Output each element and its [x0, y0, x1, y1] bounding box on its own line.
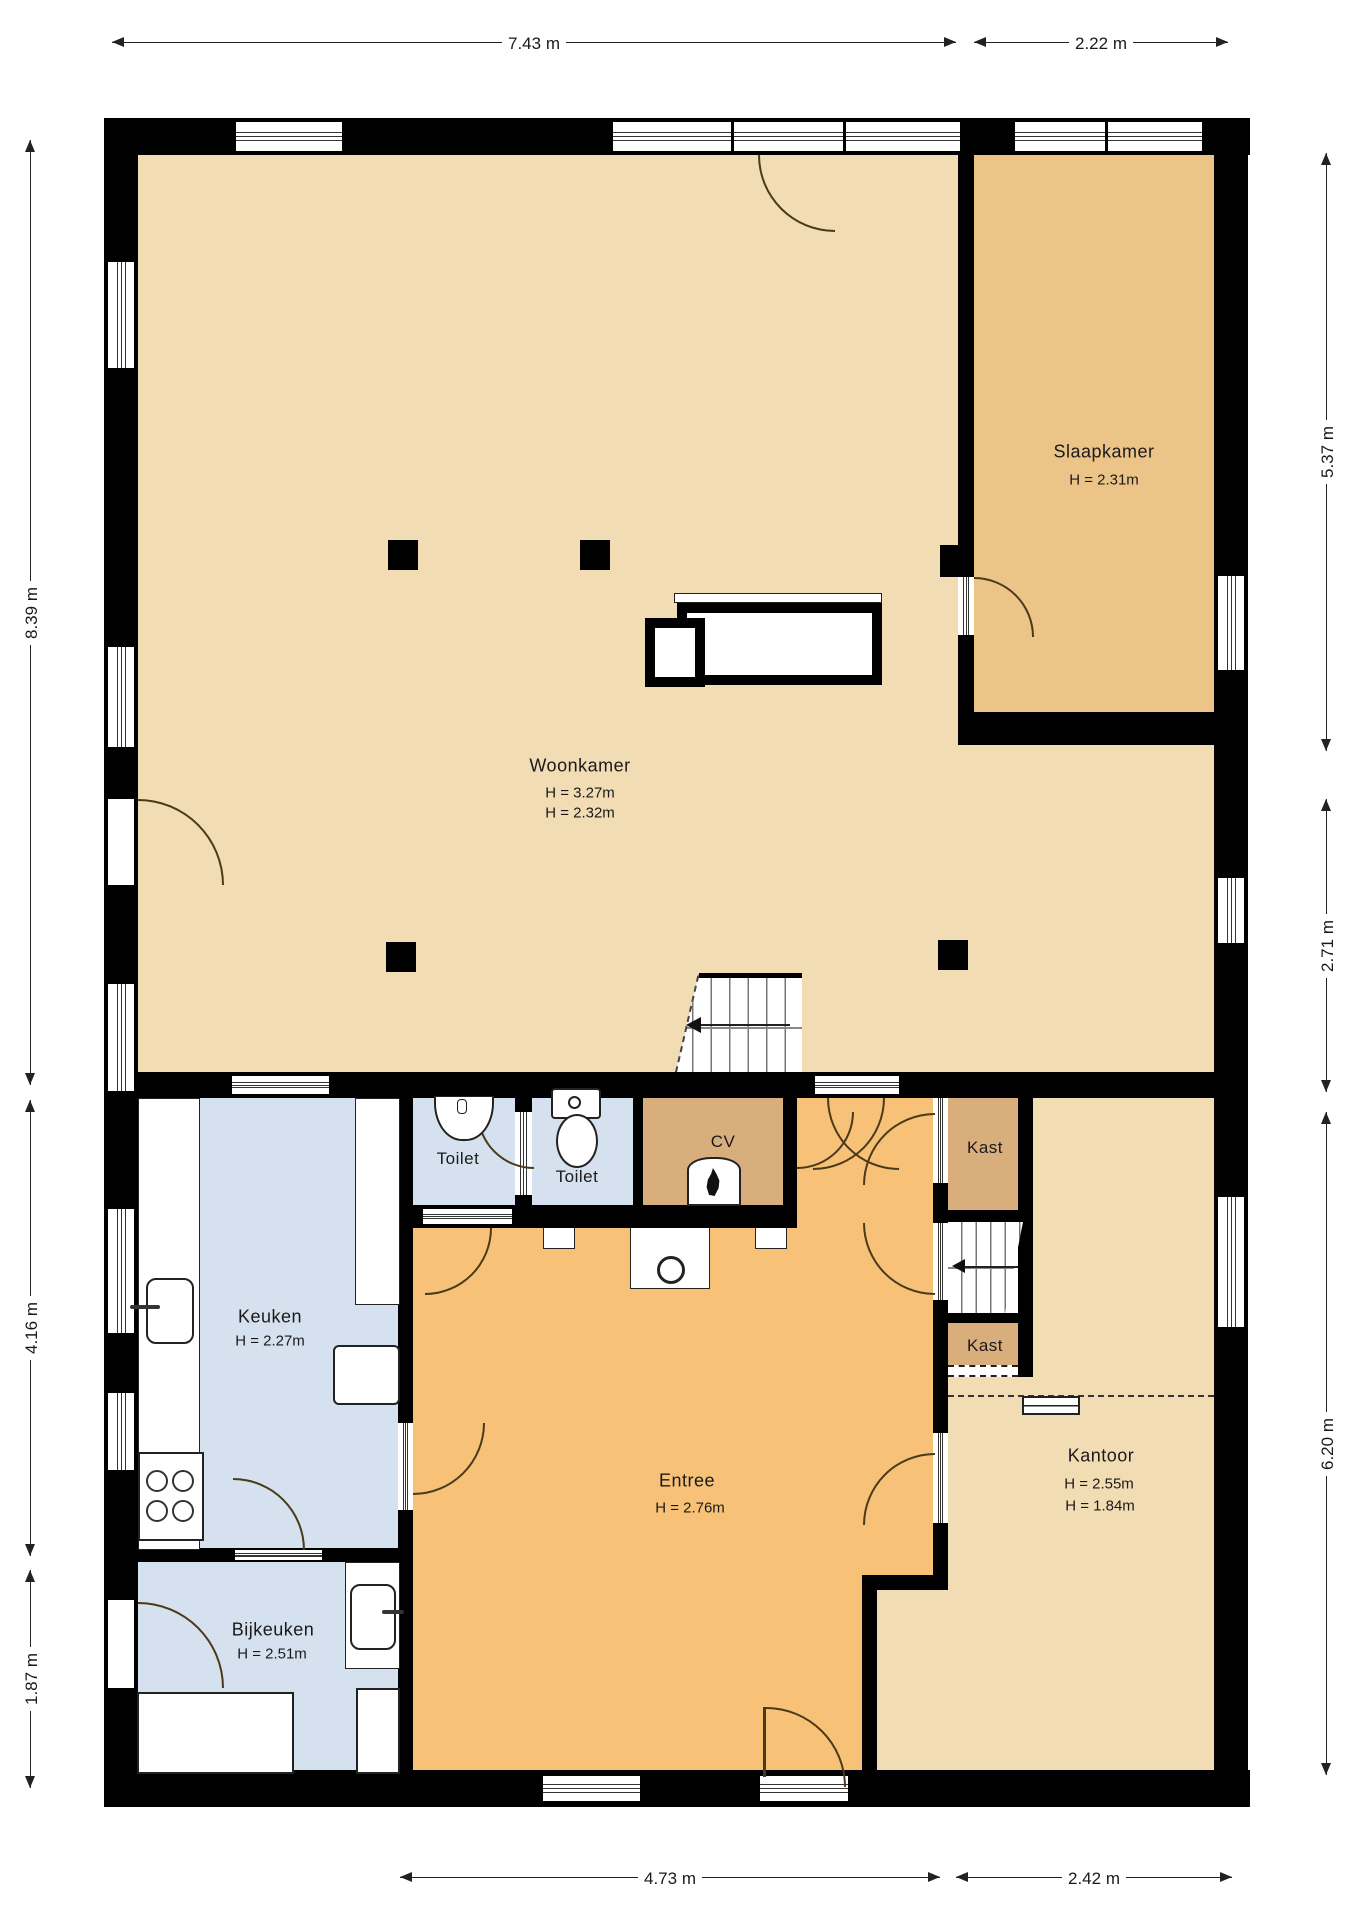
- floor-plan: Woonkamer H = 3.27m H = 2.32m Slaapkamer…: [0, 0, 1358, 1920]
- label-entree: Entree: [659, 1471, 715, 1492]
- dimension-left-1: 8.39 m: [30, 140, 31, 1085]
- door-bijkeuken: [233, 1550, 324, 1560]
- dimension-left-3: 1.87 m: [30, 1570, 31, 1788]
- column-4: [938, 940, 968, 970]
- wall-slaapkamer-stub: [940, 545, 958, 577]
- toilet2-flush-icon: [568, 1096, 581, 1109]
- window-top-2-mullion-1: [731, 122, 734, 151]
- label-slaapkamer-h: H = 2.31m: [1069, 472, 1139, 489]
- window-right-slaapkamer: [1218, 574, 1244, 672]
- kantoor-ceiling-dashed-line: [948, 1395, 1214, 1397]
- bijkeuken-sink: [350, 1584, 396, 1650]
- dimension-bottom-1: 4.73 m: [400, 1877, 940, 1878]
- column-3: [386, 942, 416, 972]
- window-keuken-2: [108, 1391, 134, 1472]
- label-keuken-h: H = 2.27m: [235, 1333, 305, 1350]
- label-woonkamer-h2: H = 2.32m: [545, 805, 615, 822]
- dimension-right-2: 2.71 m: [1326, 799, 1327, 1092]
- wall-slaapkamer-west-lower: [958, 635, 974, 712]
- column-1: [388, 540, 418, 570]
- toilet1-tap-icon: [457, 1099, 467, 1114]
- label-toilet-1: Toilet: [437, 1149, 480, 1169]
- keuken-counter-east: [355, 1098, 400, 1305]
- wall-keuken-east-lower: [398, 1510, 413, 1770]
- window-slaapkamer-top-mullion: [1105, 122, 1108, 151]
- window-left-1: [108, 260, 134, 370]
- dimension-right-2-label: 2.71 m: [1318, 914, 1338, 978]
- wall-left: [104, 118, 138, 1807]
- label-kantoor-h2: H = 1.84m: [1065, 1498, 1135, 1515]
- toilet2-bowl: [556, 1114, 598, 1168]
- fireplace-shelf: [674, 593, 882, 603]
- dimension-top-2: 2.22 m: [974, 42, 1228, 43]
- label-bijkeuken-h: H = 2.51m: [237, 1646, 307, 1663]
- dimension-left-1-label: 8.39 m: [22, 581, 42, 645]
- window-right-kantoor: [1218, 1195, 1244, 1329]
- label-entree-h: H = 2.76m: [655, 1500, 725, 1517]
- bijkeuken-washer-2: [356, 1688, 400, 1774]
- wall-slaapkamer-south: [958, 712, 1214, 745]
- dimension-left-2: 4.16 m: [30, 1100, 31, 1556]
- staircase-main-arrow-icon: [686, 1017, 701, 1033]
- entree-chimney-flue: [657, 1256, 685, 1284]
- wall-kast1-south: [948, 1210, 1023, 1222]
- window-left-2: [108, 645, 134, 749]
- dimension-right-1-label: 5.37 m: [1318, 420, 1338, 484]
- room-kantoor-main: [948, 1377, 1214, 1770]
- dimension-right-1: 5.37 m: [1326, 153, 1327, 751]
- window-top-1: [234, 122, 344, 151]
- room-kantoor-north: [1033, 1098, 1214, 1397]
- hatch-keuken: [230, 1076, 331, 1094]
- label-kast-2: Kast: [967, 1336, 1003, 1356]
- window-top-2: [611, 122, 962, 151]
- wall-entree-jog: [862, 1575, 948, 1590]
- label-cv: CV: [711, 1132, 736, 1152]
- dimension-bottom-2: 2.42 m: [956, 1877, 1232, 1878]
- door-stairs: [933, 1223, 948, 1300]
- label-toilet-2: Toilet: [556, 1167, 599, 1187]
- label-woonkamer: Woonkamer: [529, 756, 630, 777]
- dimension-bottom-1-label: 4.73 m: [638, 1869, 702, 1889]
- stove-burner-4: [172, 1500, 194, 1522]
- door-kast-1: [933, 1098, 948, 1183]
- window-left-3: [108, 982, 134, 1093]
- keuken-sink: [146, 1278, 194, 1344]
- label-bijkeuken: Bijkeuken: [232, 1620, 315, 1641]
- kantoor-radiator: [1022, 1396, 1080, 1415]
- door-slaapkamer: [958, 577, 974, 635]
- bijkeuken-tap-icon: [382, 1610, 404, 1614]
- room-kantoor-west: [877, 1590, 948, 1770]
- window-keuken-1: [108, 1207, 134, 1335]
- door-opening-woonkamer-left: [108, 799, 134, 885]
- wall-entree-east-a: [933, 1183, 948, 1223]
- wall-toilet2-cv: [633, 1098, 643, 1205]
- dimension-left-2-label: 4.16 m: [22, 1296, 42, 1360]
- wall-niche-1: [543, 1228, 575, 1249]
- door-keuken: [398, 1423, 413, 1510]
- window-top-2-mullion-2: [843, 122, 846, 151]
- wall-keuken-east-upper: [398, 1098, 413, 1423]
- wall-niche-2: [755, 1228, 787, 1249]
- dimension-top-1-label: 7.43 m: [502, 34, 566, 54]
- label-keuken: Keuken: [238, 1307, 302, 1328]
- wall-cv-east: [783, 1098, 797, 1205]
- wall-slaapkamer-west-upper: [958, 155, 974, 577]
- window-right-woonkamer: [1218, 876, 1244, 945]
- staircase-main-arrow-shaft: [700, 1024, 790, 1026]
- window-bottom-entree: [541, 1776, 642, 1801]
- dimension-left-3-label: 1.87 m: [22, 1647, 42, 1711]
- wall-entree-south-east: [862, 1590, 877, 1770]
- door-kantoor: [933, 1433, 948, 1523]
- opening-kast2-south: [948, 1365, 1018, 1377]
- wall-stairs2-south: [948, 1313, 1023, 1323]
- label-kantoor: Kantoor: [1068, 1446, 1135, 1467]
- fireplace-side: [645, 618, 705, 687]
- fireplace-main: [677, 603, 882, 685]
- wall-entree-east-b: [933, 1300, 948, 1433]
- keuken-fridge: [333, 1345, 400, 1405]
- label-woonkamer-h1: H = 3.27m: [545, 785, 615, 802]
- dimension-right-3-label: 6.20 m: [1318, 1412, 1338, 1476]
- dimension-right-3: 6.20 m: [1326, 1112, 1327, 1775]
- door-toiletzone: [421, 1209, 514, 1224]
- label-kantoor-h1: H = 2.55m: [1064, 1476, 1134, 1493]
- keuken-tap-icon: [130, 1305, 160, 1309]
- window-slaapkamer-top: [1013, 122, 1204, 151]
- label-kast-1: Kast: [967, 1138, 1003, 1158]
- door-woonkamer-entree: [813, 1076, 901, 1094]
- dimension-top-2-label: 2.22 m: [1069, 34, 1133, 54]
- staircase-kantoor-arrow-icon: [952, 1259, 965, 1273]
- stove-burner-2: [172, 1470, 194, 1492]
- wall-bottom: [104, 1770, 1250, 1807]
- dimension-bottom-2-label: 2.42 m: [1062, 1869, 1126, 1889]
- staircase-kantoor-arrow-shaft: [964, 1266, 1018, 1268]
- column-2: [580, 540, 610, 570]
- dimension-top-1: 7.43 m: [112, 42, 956, 43]
- bijkeuken-washer-1: [137, 1692, 294, 1774]
- door-opening-bijkeuken-left: [108, 1600, 134, 1688]
- keuken-stove: [138, 1452, 204, 1541]
- stove-burner-1: [146, 1470, 168, 1492]
- label-slaapkamer: Slaapkamer: [1053, 442, 1154, 463]
- stove-burner-3: [146, 1500, 168, 1522]
- wall-right: [1214, 118, 1248, 1807]
